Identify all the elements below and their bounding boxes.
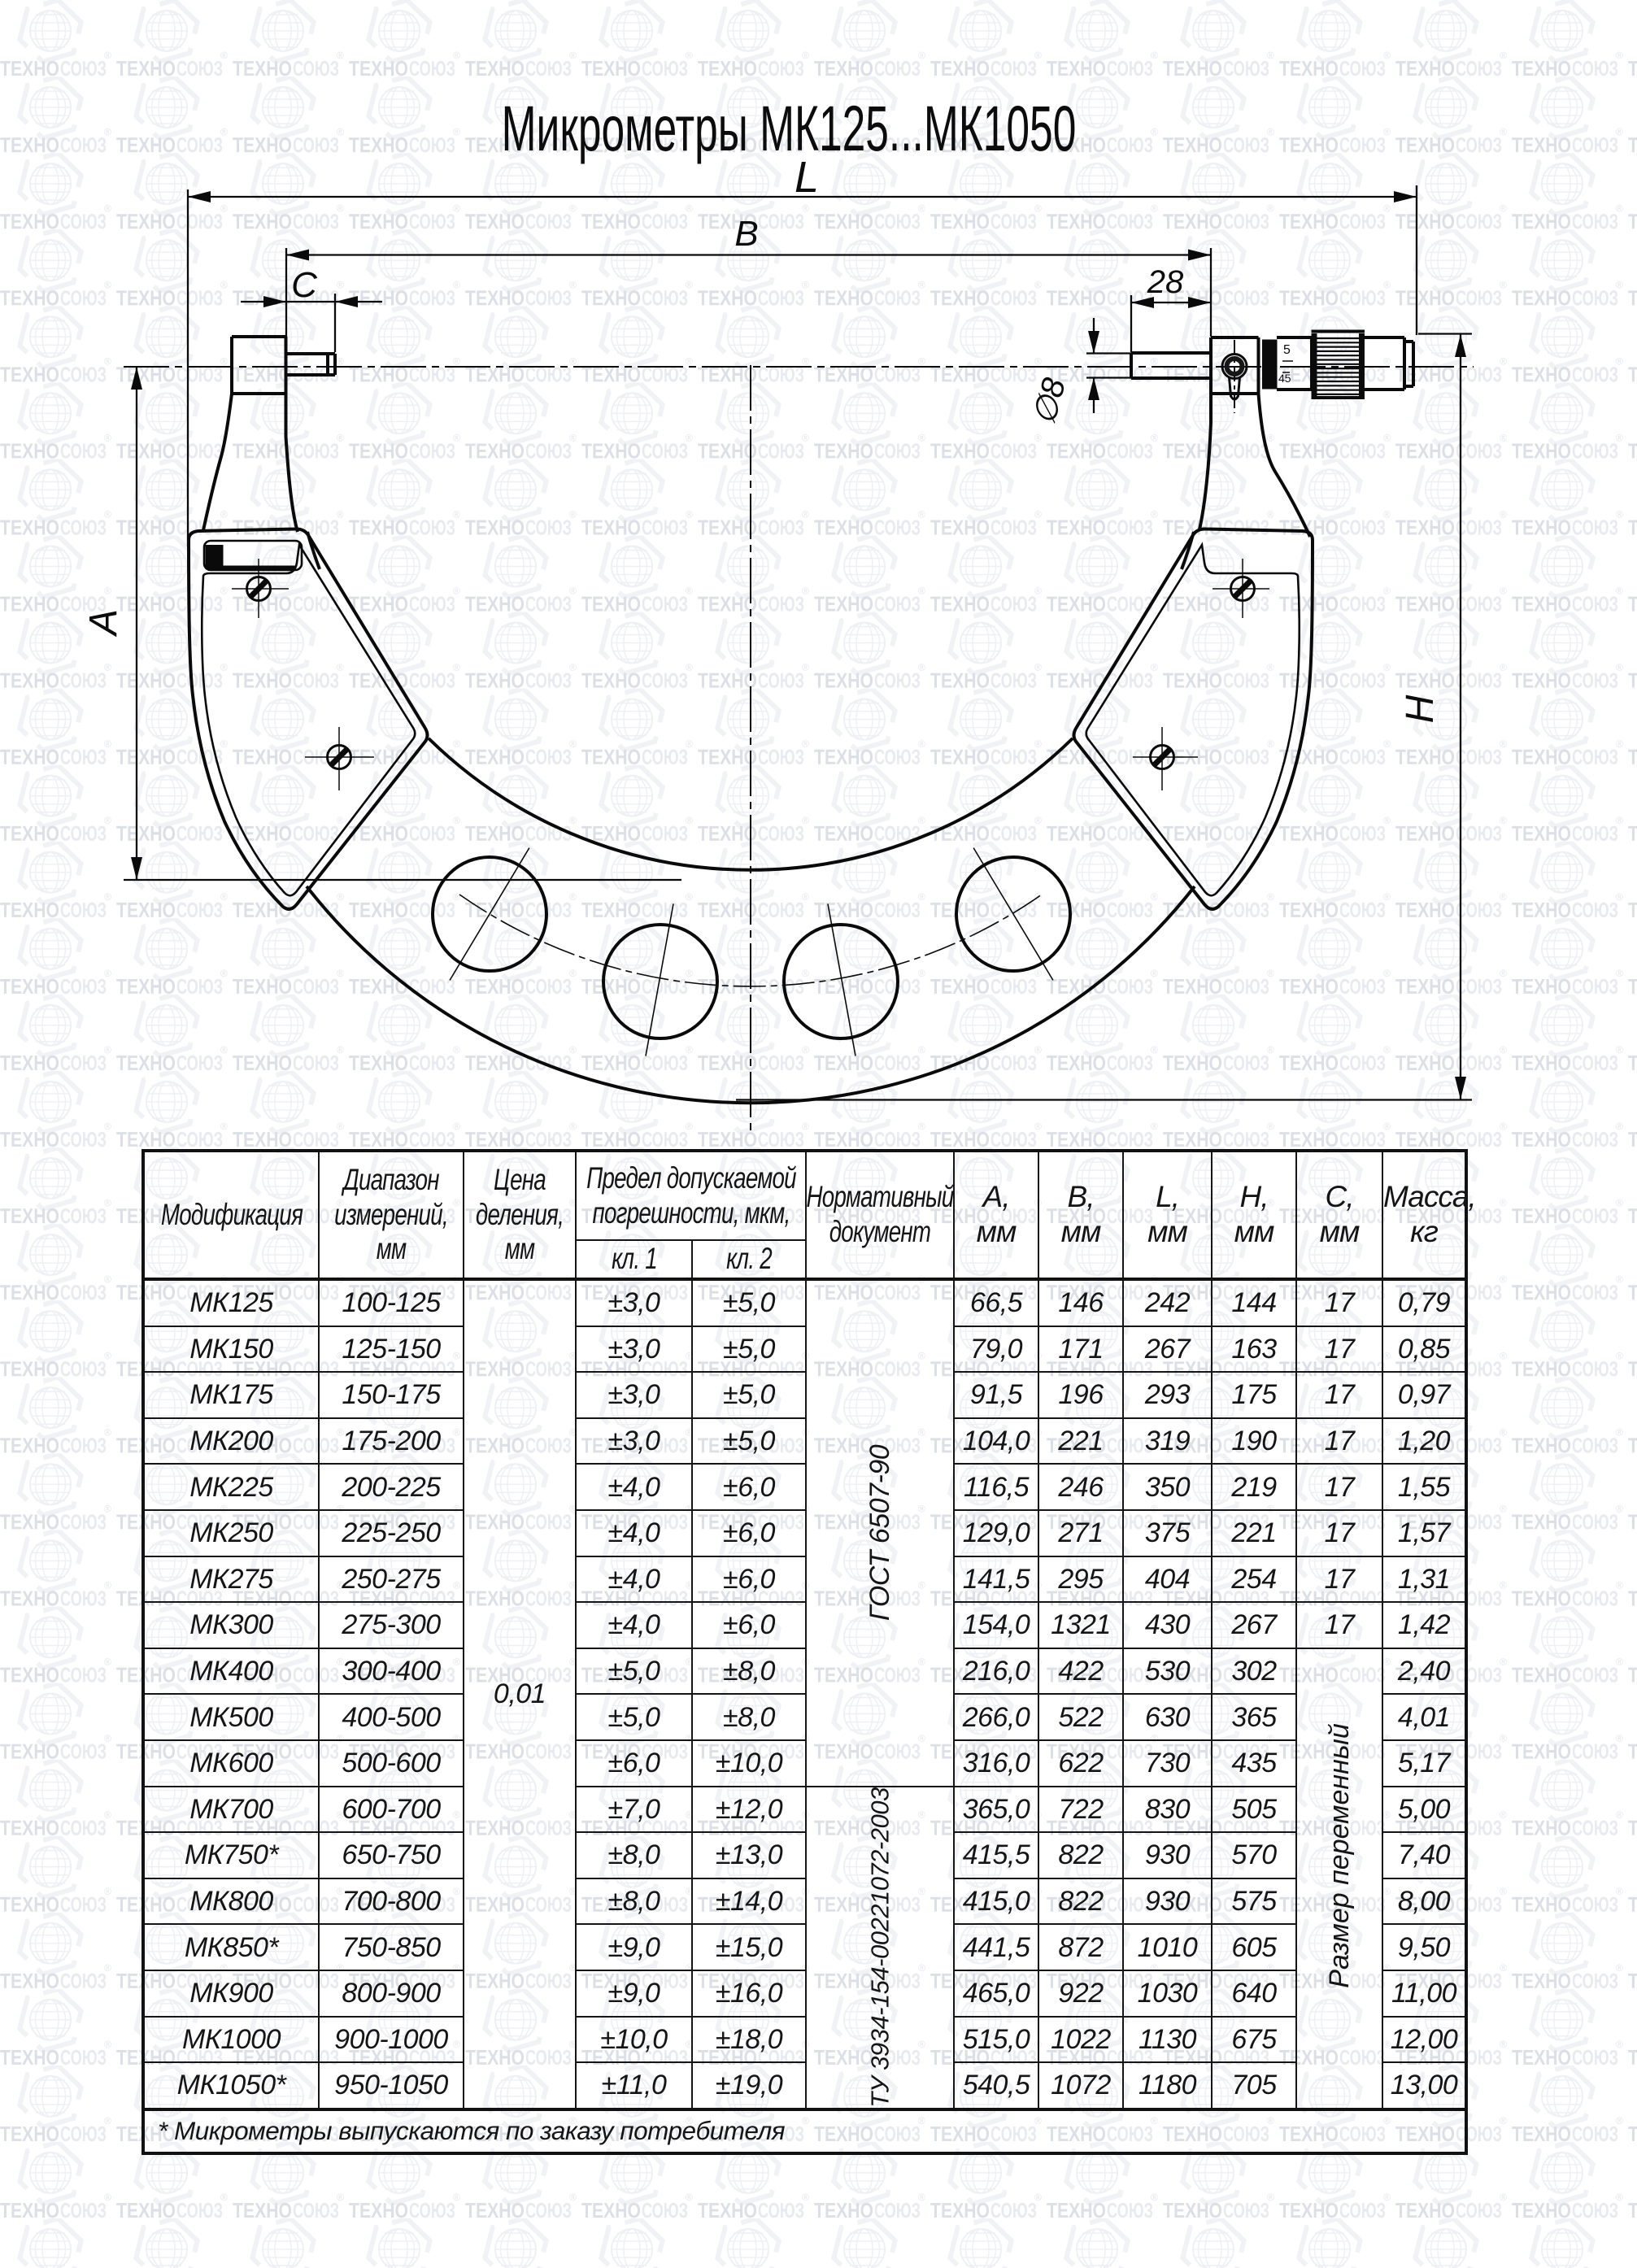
svg-text:∅8: ∅8 <box>1026 374 1073 429</box>
svg-text:5: 5 <box>1283 343 1291 357</box>
svg-text:45: 45 <box>1278 372 1291 385</box>
svg-text:28: 28 <box>1147 264 1184 300</box>
svg-text:A: A <box>82 609 125 638</box>
svg-text:B: B <box>734 214 758 254</box>
svg-text:C: C <box>291 265 318 305</box>
svg-text:H: H <box>1399 694 1442 723</box>
